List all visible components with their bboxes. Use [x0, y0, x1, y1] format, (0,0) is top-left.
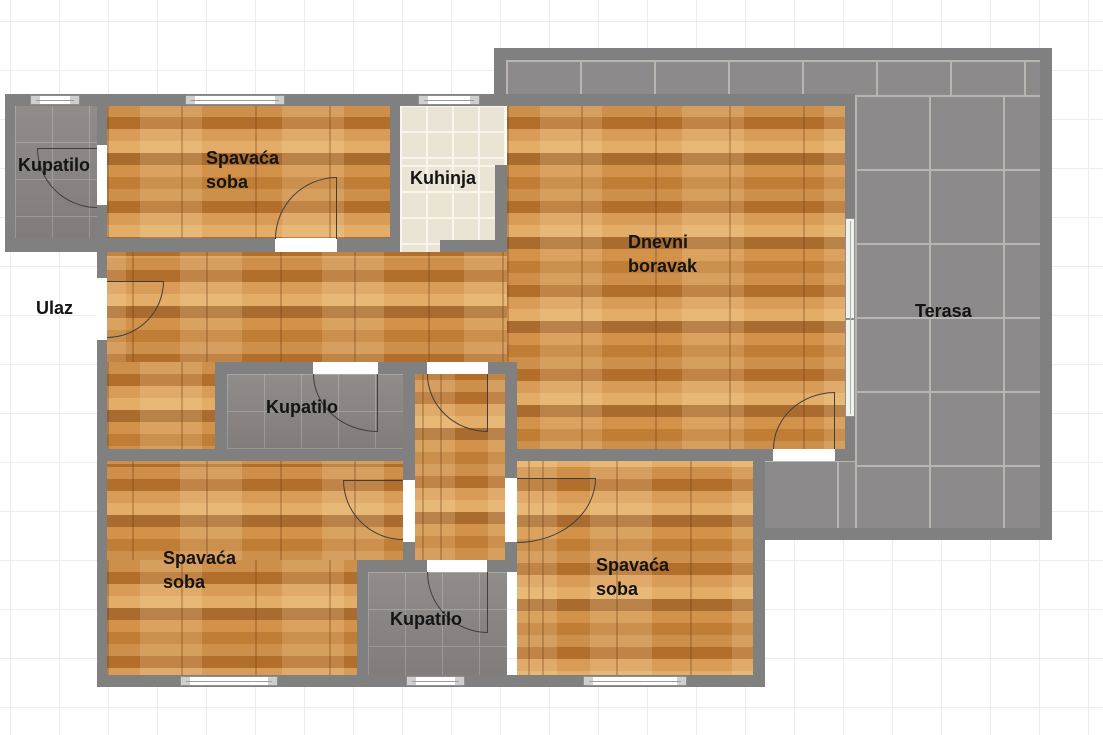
wall-terrace-stub — [494, 48, 506, 95]
wall-left-upper — [5, 94, 15, 252]
floor-terrace-top-strip — [506, 60, 1040, 95]
window-bedroom-br — [583, 676, 687, 686]
door-opening-bedroom-br — [505, 478, 517, 542]
room-label-kitchen: Kuhinja — [410, 166, 500, 190]
door-opening-bathroom-mid — [313, 362, 378, 374]
floor-hallway-left — [107, 362, 215, 449]
door-opening-bathroom-bot — [427, 560, 487, 572]
door-opening-bedroom-bl — [403, 480, 415, 542]
room-label-bedroom-bottom-left: Spavaća soba — [163, 546, 263, 594]
wall-bathbot-left — [357, 560, 368, 687]
wall-kitchen-left — [390, 94, 400, 252]
door-opening-bedroom-top — [275, 238, 337, 252]
room-label-living-room: Dnevni boravak — [628, 230, 738, 278]
room-label-bathroom-middle: Kupatilo — [266, 395, 356, 419]
wall-bathmid-left — [215, 362, 227, 461]
room-label-terrace: Terasa — [915, 299, 995, 323]
room-label-bedroom-bottom-right: Spavaća soba — [596, 553, 696, 601]
window-bathroom-bot — [406, 676, 465, 686]
window-bedroom-top — [185, 95, 285, 105]
floor-plan: Kupatilo Spavaća soba Kuhinja Dnevni bor… — [0, 0, 1103, 735]
wall-terrace-top — [494, 48, 1052, 60]
room-label-entrance: Ulaz — [36, 296, 106, 320]
floor-hallway-upper — [107, 252, 507, 362]
wall-terrace-right — [1040, 48, 1052, 540]
window-kitchen — [418, 95, 480, 105]
room-label-bathroom-bottom: Kupatilo — [390, 607, 480, 631]
wall-band-upper — [5, 238, 400, 252]
room-label-bathroom-top-left: Kupatilo — [18, 153, 108, 177]
wall-kitchen-bottom — [440, 240, 507, 252]
door-opening-corridor-top — [427, 362, 488, 374]
door-opening-terrace-south — [773, 449, 835, 461]
window-bedroom-bl — [180, 676, 278, 686]
sliding-door-terrace — [845, 218, 855, 417]
wall-band-lower-left — [97, 449, 403, 461]
floor-terrace-notch — [763, 460, 855, 528]
room-label-bedroom-top: Spavaća soba — [206, 146, 306, 194]
window-bathroom-tl — [30, 95, 80, 105]
wall-bedroom-br-right — [753, 449, 765, 687]
wall-terrace-bottom — [753, 528, 1052, 540]
wall-bathmid-top-a — [215, 362, 313, 374]
floor-kitchen — [400, 105, 505, 165]
